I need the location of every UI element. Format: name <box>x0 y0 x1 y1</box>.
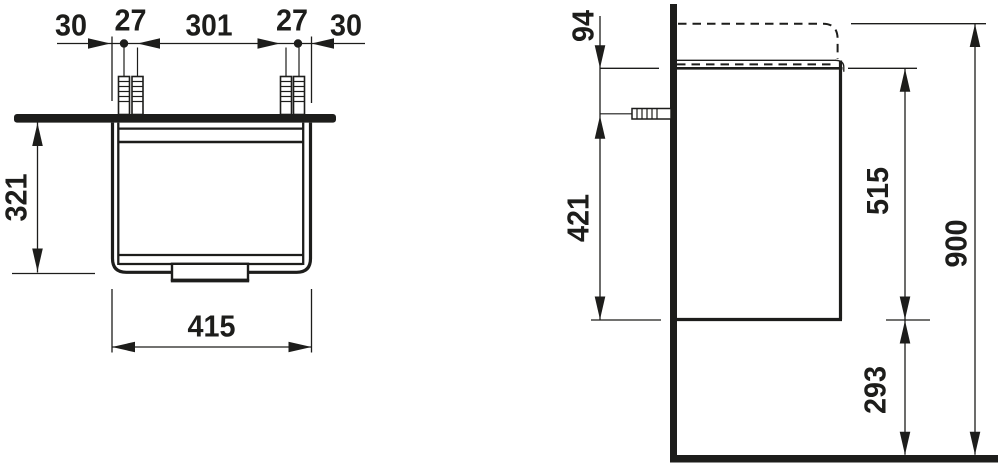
arrowhead-up <box>32 123 43 146</box>
wall-plug-icon <box>281 77 292 115</box>
arrowhead-left <box>112 342 135 353</box>
reference-dot <box>120 39 128 47</box>
washbasin-top <box>14 114 336 123</box>
right-dimension-columns: 515 293 900 <box>848 24 986 455</box>
dim-label-total-height: 900 <box>939 220 974 268</box>
arrowhead-right <box>258 38 281 49</box>
dim-label-width: 415 <box>188 309 236 344</box>
basin-dashed-outline <box>678 24 838 59</box>
wall-plug-icon <box>119 77 130 115</box>
reference-dot <box>294 39 302 47</box>
wall-plug-side-icon <box>600 109 671 120</box>
arrowhead-down <box>900 297 911 320</box>
dim-label-right-plug-spacing: 27 <box>276 3 308 38</box>
side-view: 94 421 515 293 900 <box>561 4 999 463</box>
dim-label-left-margin: 30 <box>55 8 87 43</box>
bottom-recess <box>172 264 248 280</box>
left-dimension-column: 94 421 <box>561 9 662 320</box>
technical-drawing: 30 27 301 27 30 321 <box>0 0 1000 467</box>
dim-label-plug-height: 421 <box>561 194 596 242</box>
dim-label-body-height: 321 <box>0 174 34 222</box>
arrowhead-left <box>138 38 161 49</box>
arrowhead-up <box>595 116 606 139</box>
height-dimension: 321 <box>0 123 95 274</box>
arrowhead-up <box>970 24 981 47</box>
dim-label-left-plug-spacing: 27 <box>115 3 147 38</box>
arrowhead-right <box>88 38 111 49</box>
arrowhead-down <box>900 432 911 455</box>
arrowhead-right <box>289 342 312 353</box>
arrowhead-down <box>595 45 606 68</box>
floor-line <box>670 455 998 463</box>
arrowhead-down <box>970 432 981 455</box>
cabinet-body-outline <box>113 123 311 273</box>
dim-label-floor-clearance: 293 <box>858 366 893 414</box>
dim-label-body-height-side: 515 <box>860 167 895 215</box>
front-view: 30 27 301 27 30 321 <box>0 3 365 353</box>
arrowhead-up <box>900 321 911 344</box>
wall-line <box>670 4 677 462</box>
arrowhead-up <box>900 69 911 92</box>
dim-label-basin-top-offset: 94 <box>566 9 601 42</box>
dim-label-right-margin: 30 <box>330 8 362 43</box>
arrowhead-down <box>595 297 606 320</box>
dimension-drawing-canvas: 30 27 301 27 30 321 <box>0 0 1000 467</box>
wall-plug-icon <box>132 77 143 115</box>
width-dimension: 415 <box>112 289 312 353</box>
arrowhead-down <box>32 249 43 272</box>
wall-plug-icon <box>294 77 305 115</box>
top-dimension-chain: 30 27 301 27 30 <box>55 3 365 104</box>
dim-label-center-span: 301 <box>186 8 233 43</box>
